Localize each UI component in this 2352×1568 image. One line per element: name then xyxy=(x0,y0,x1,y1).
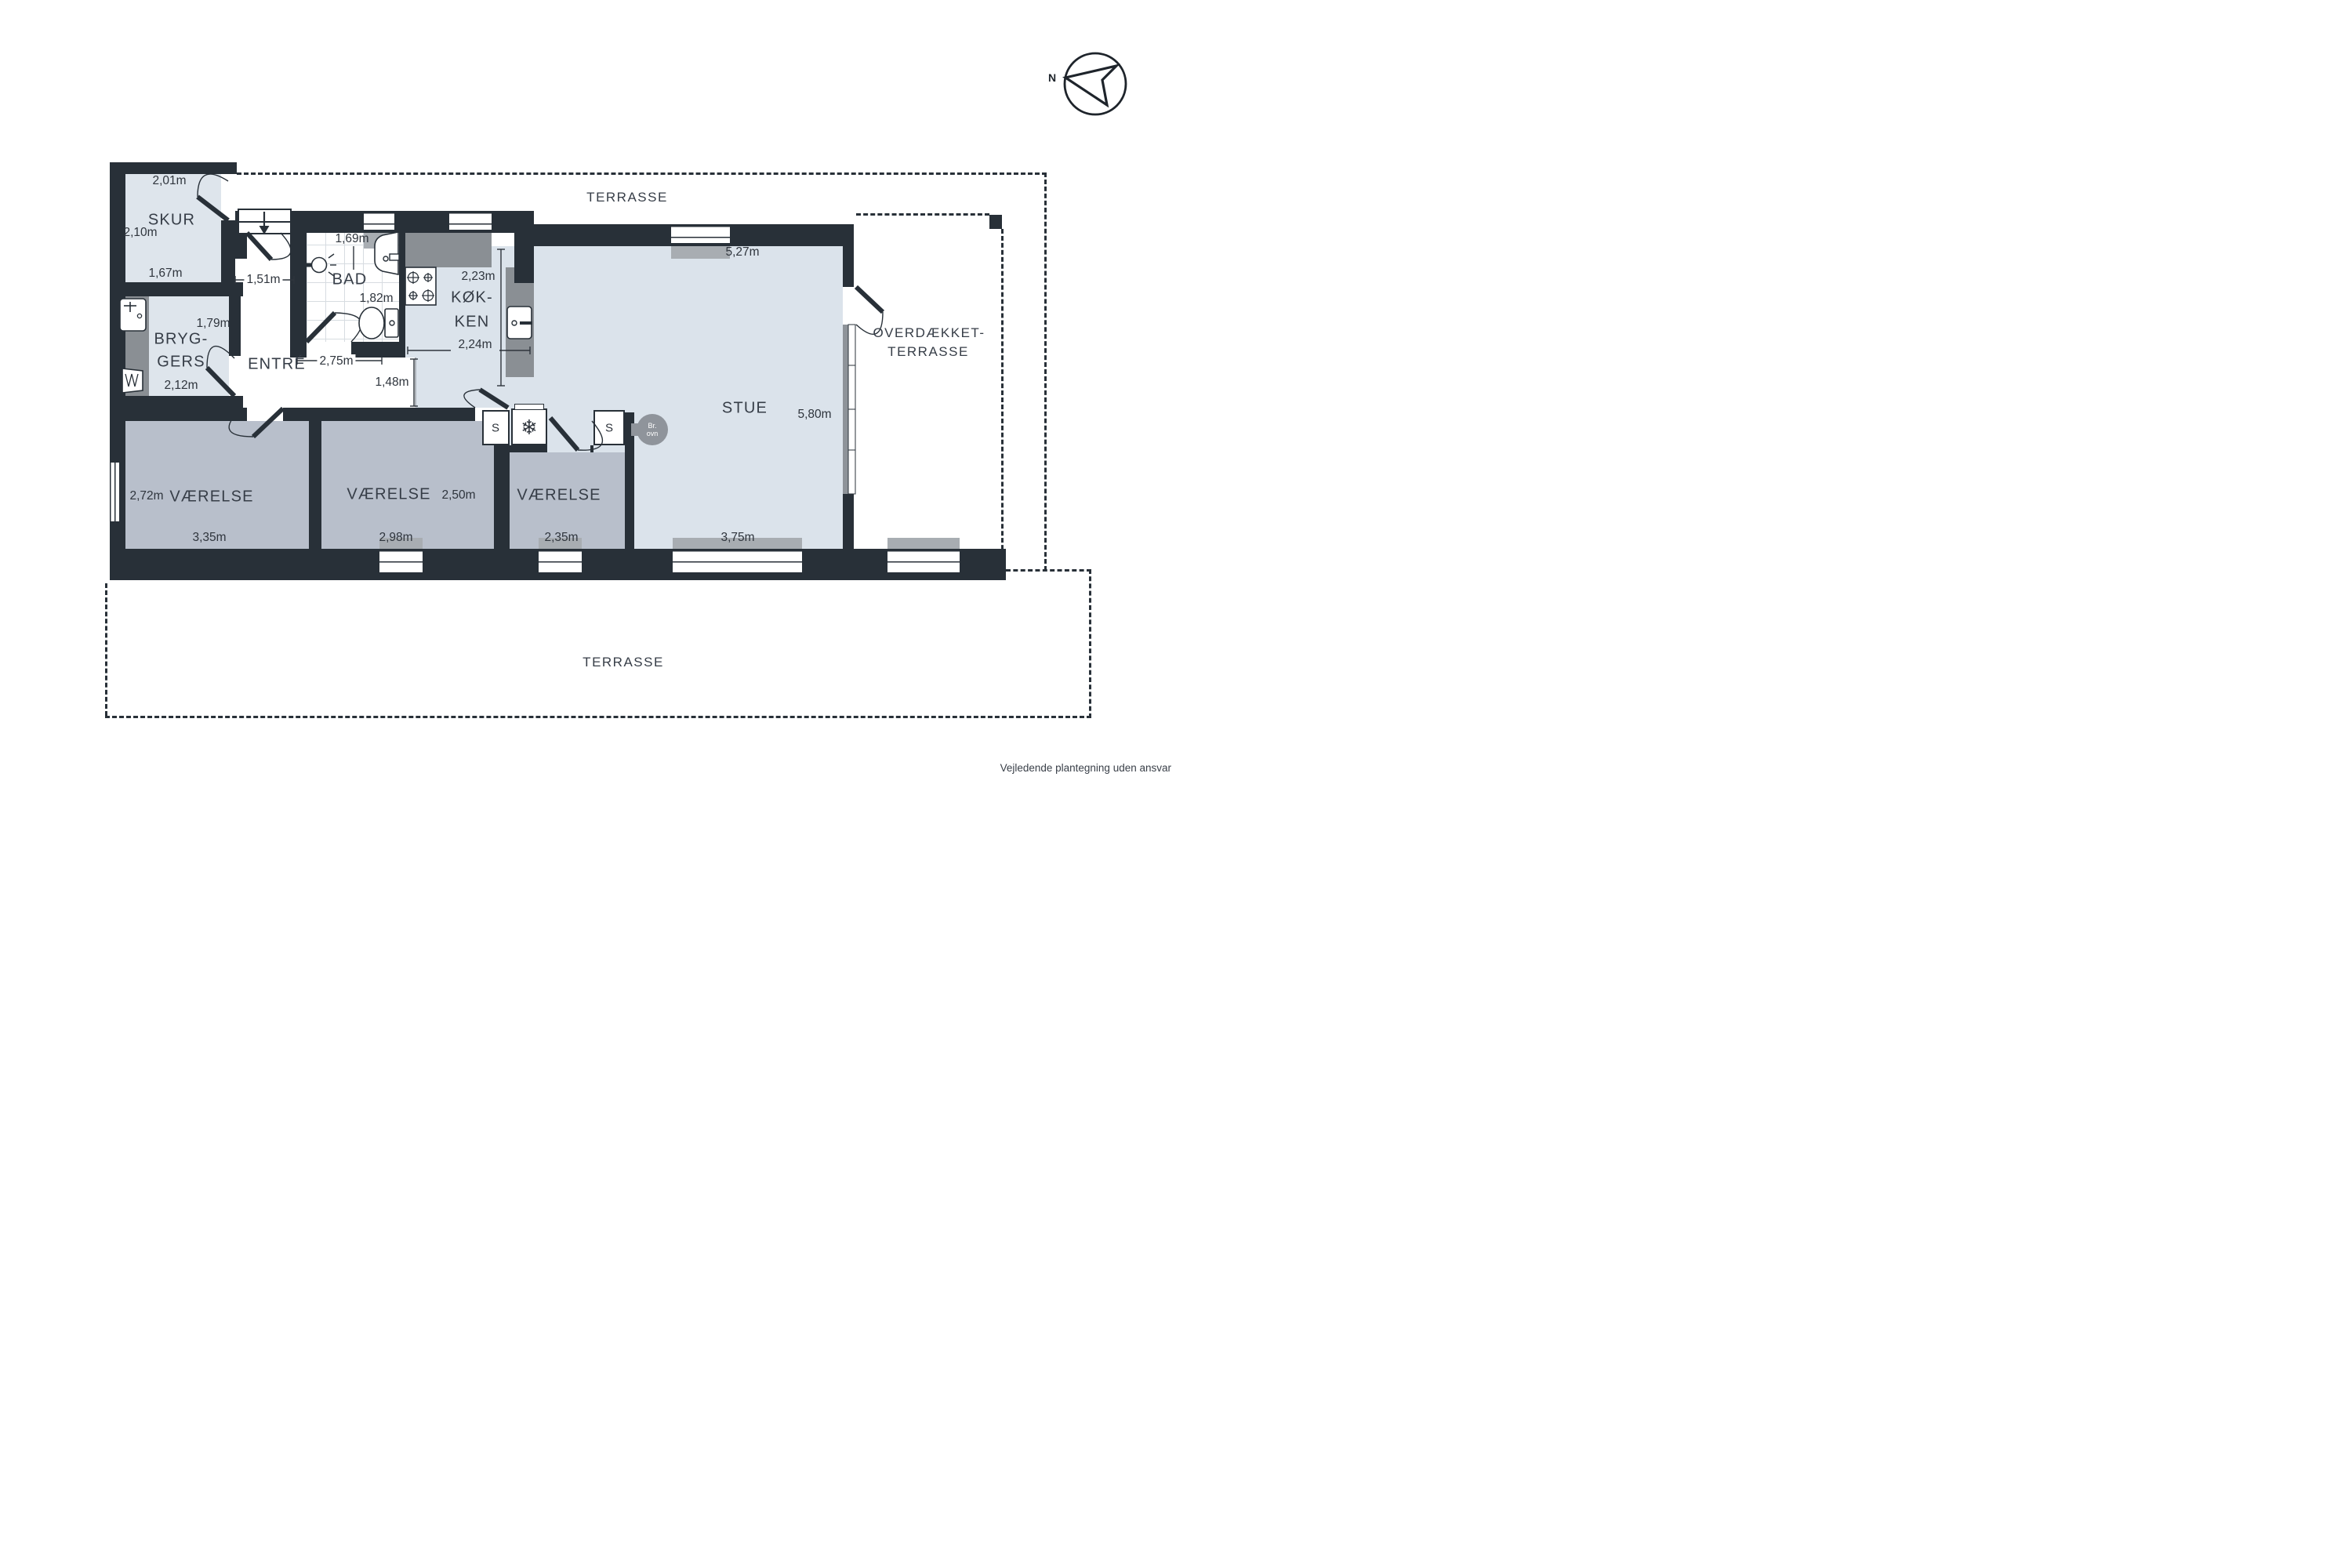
stue-glass-wall xyxy=(843,325,855,494)
entre-label: ENTRÉ xyxy=(248,356,306,374)
bryggers-door xyxy=(207,347,234,396)
entrance-arrow-icon xyxy=(239,212,290,234)
wood-stove-label-2: ovn xyxy=(647,430,659,437)
meas-entre-door: 1,51m xyxy=(244,273,282,287)
bad-sink-icon xyxy=(375,232,399,274)
meas-koekken-bottom: 2,24m xyxy=(458,338,492,352)
koekken-label-1: KØK- xyxy=(451,289,493,307)
wood-stove-label-1: Br. xyxy=(648,422,656,430)
vaerelse2-door xyxy=(464,390,508,408)
meas-bad-top: 1,69m xyxy=(335,232,368,246)
meas-v1-left: 2,72m xyxy=(129,489,163,503)
meas-hall-depth: 1,48m xyxy=(372,376,411,390)
bad-label: BAD xyxy=(332,271,368,289)
meas-bryggers-top: 1,79m xyxy=(196,317,230,331)
vaerelse3-label: VÆRELSE xyxy=(517,487,601,505)
disclaimer-text: Vejledende plantegning uden ansvar xyxy=(1000,762,1171,774)
bryggers-sink-icon xyxy=(120,299,146,331)
meas-skur-bottom: 1,67m xyxy=(148,267,182,281)
cabinet-1-label: S xyxy=(492,422,499,435)
koekken-label-2: KEN xyxy=(455,314,490,332)
meas-v2-right: 2,50m xyxy=(441,488,475,503)
toilet-icon xyxy=(359,307,398,339)
meas-koekken-top: 2,23m xyxy=(461,270,495,284)
vaerelse1-door xyxy=(229,408,283,437)
vaerelse2-label: VÆRELSE xyxy=(347,486,430,504)
compass-north-label: N xyxy=(1048,71,1056,84)
bad-door xyxy=(307,313,361,342)
stove-icon xyxy=(405,267,436,305)
meas-bad-height: 1,82m xyxy=(359,292,393,306)
meas-stue-bottom: 3,75m xyxy=(720,531,754,545)
meas-skur-left: 2,10m xyxy=(123,226,157,240)
meas-v3-bottom: 2,35m xyxy=(544,531,578,545)
vaerelse1-label: VÆRELSE xyxy=(169,488,253,506)
overdaekket-label-2: TERRASSE xyxy=(887,344,969,360)
stue-label: STUE xyxy=(722,400,768,418)
meas-v1-bottom: 3,35m xyxy=(192,531,226,545)
overdaekket-label-1: OVERDÆKKET- xyxy=(873,325,985,341)
floor-plan: TERRASSE TERRASSE SKUR BAD KØK- KEN BRYG… xyxy=(0,0,1176,784)
meas-stue-top: 5,27m xyxy=(725,245,759,260)
entry-door xyxy=(247,233,291,260)
vaerelse3-door xyxy=(550,418,602,450)
bryggers-label-2: GERS xyxy=(157,354,205,372)
cabinet-2-label: S xyxy=(605,422,613,435)
skur-door xyxy=(198,174,228,220)
meas-v2-bottom: 2,98m xyxy=(379,531,412,545)
terrasse-bottom-label: TERRASSE xyxy=(583,655,664,670)
meas-stue-right: 5,80m xyxy=(797,408,831,422)
terrasse-top-label: TERRASSE xyxy=(586,190,668,205)
meas-bryggers-bottom: 2,12m xyxy=(164,379,198,393)
compass-icon xyxy=(1065,53,1126,114)
washing-machine-icon xyxy=(122,368,143,393)
snowflake-icon: ❄ xyxy=(521,416,538,440)
meas-hall-width: 2,75m xyxy=(317,354,355,368)
koekken-sink-icon xyxy=(507,307,532,339)
bryggers-label-1: BRYG- xyxy=(154,331,209,349)
meas-skur-top: 2,01m xyxy=(152,174,186,188)
